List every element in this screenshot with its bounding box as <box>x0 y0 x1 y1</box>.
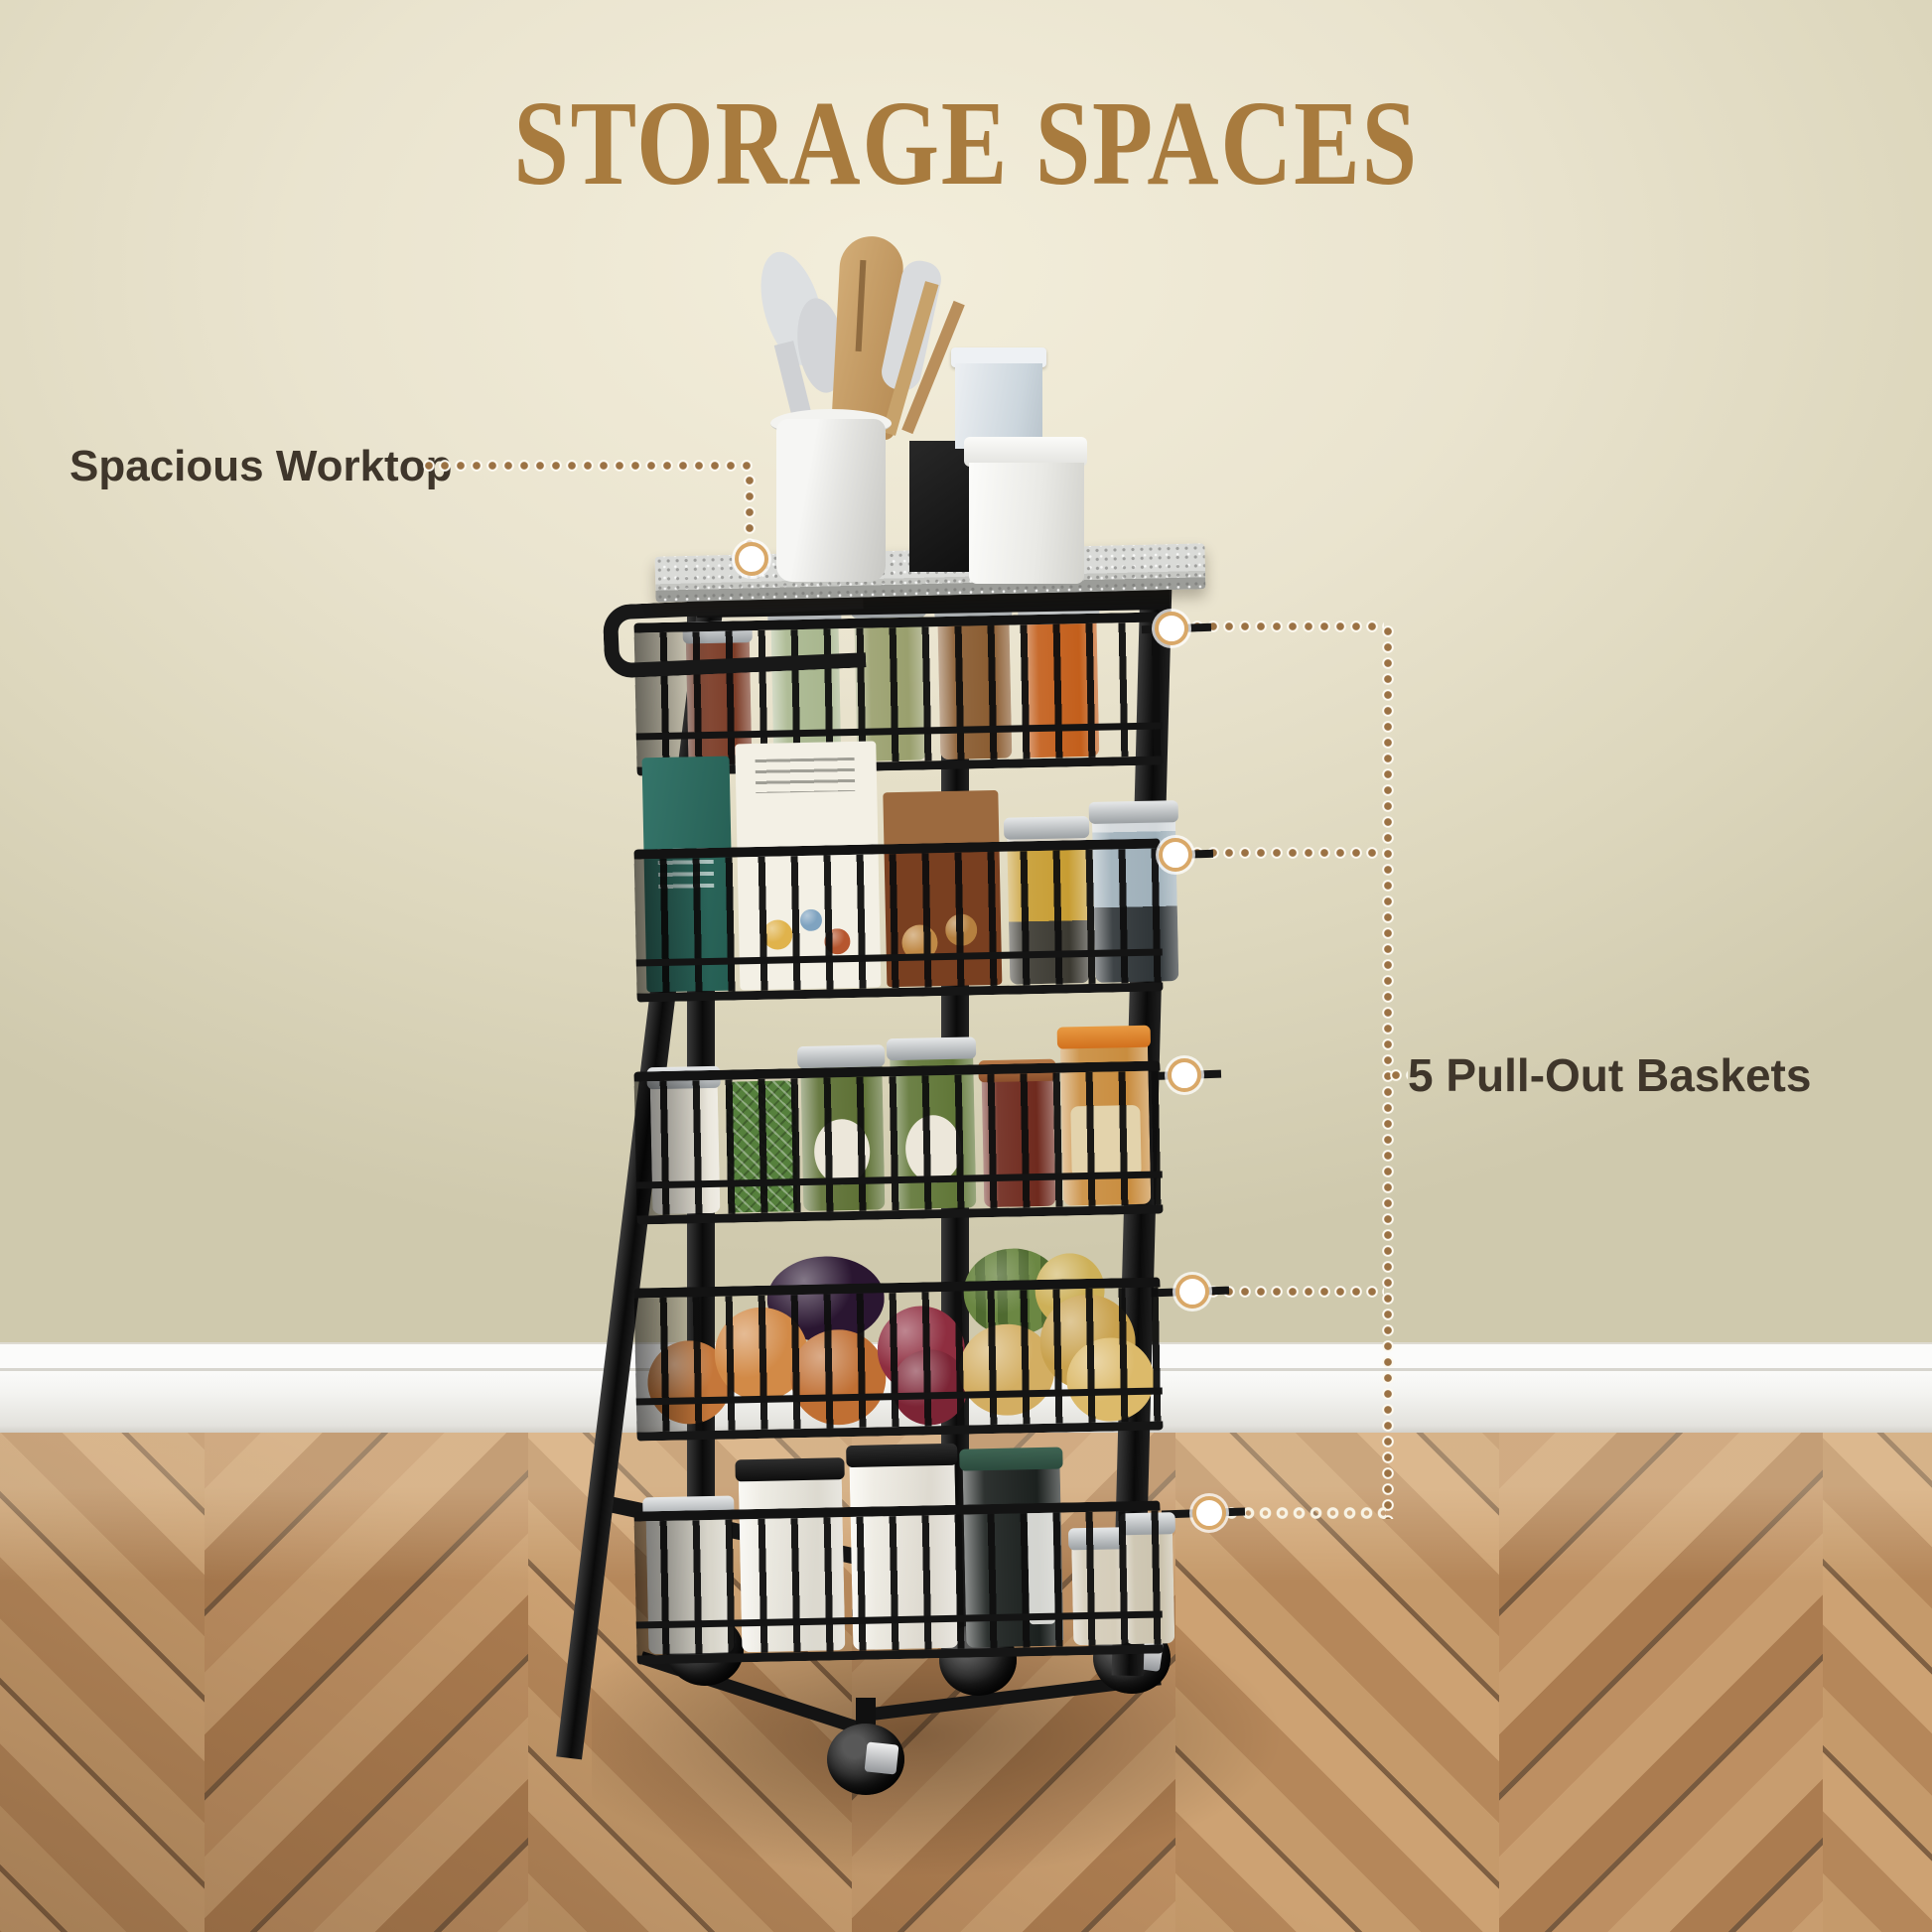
basket-2-dotted-line <box>1189 846 1384 860</box>
worktop-dotted-line-horizontal <box>421 459 753 473</box>
label-junction-dotted-line <box>1388 1068 1408 1082</box>
pull-out-basket-5 <box>633 1500 1163 1664</box>
basket-1-point-marker <box>1155 612 1188 645</box>
utensil-crock <box>776 419 886 582</box>
product-infographic-scene: STORAGE SPACES Spacious Worktop 5 Pull-O… <box>0 0 1932 1932</box>
worktop-callout-label: Spacious Worktop <box>69 442 452 491</box>
basket-wire-front <box>633 1500 1163 1664</box>
baskets-callout-label: 5 Pull-Out Baskets <box>1408 1048 1811 1102</box>
worktop-point-marker <box>735 542 768 576</box>
basket-3-point-marker <box>1168 1058 1201 1092</box>
basket-4-dotted-line <box>1205 1285 1384 1299</box>
cart-handle <box>603 594 867 678</box>
basket-5-point-marker <box>1192 1496 1226 1530</box>
basket-1-dotted-line <box>1189 620 1384 633</box>
page-title: STORAGE SPACES <box>174 83 1758 205</box>
box-text-lines <box>756 758 856 793</box>
basket-5-dotted-line <box>1223 1506 1386 1520</box>
caster-brake-tab <box>865 1741 899 1774</box>
basket-4-point-marker <box>1175 1275 1209 1309</box>
basket-2-point-marker <box>1159 838 1192 872</box>
white-canister-body <box>969 463 1084 584</box>
